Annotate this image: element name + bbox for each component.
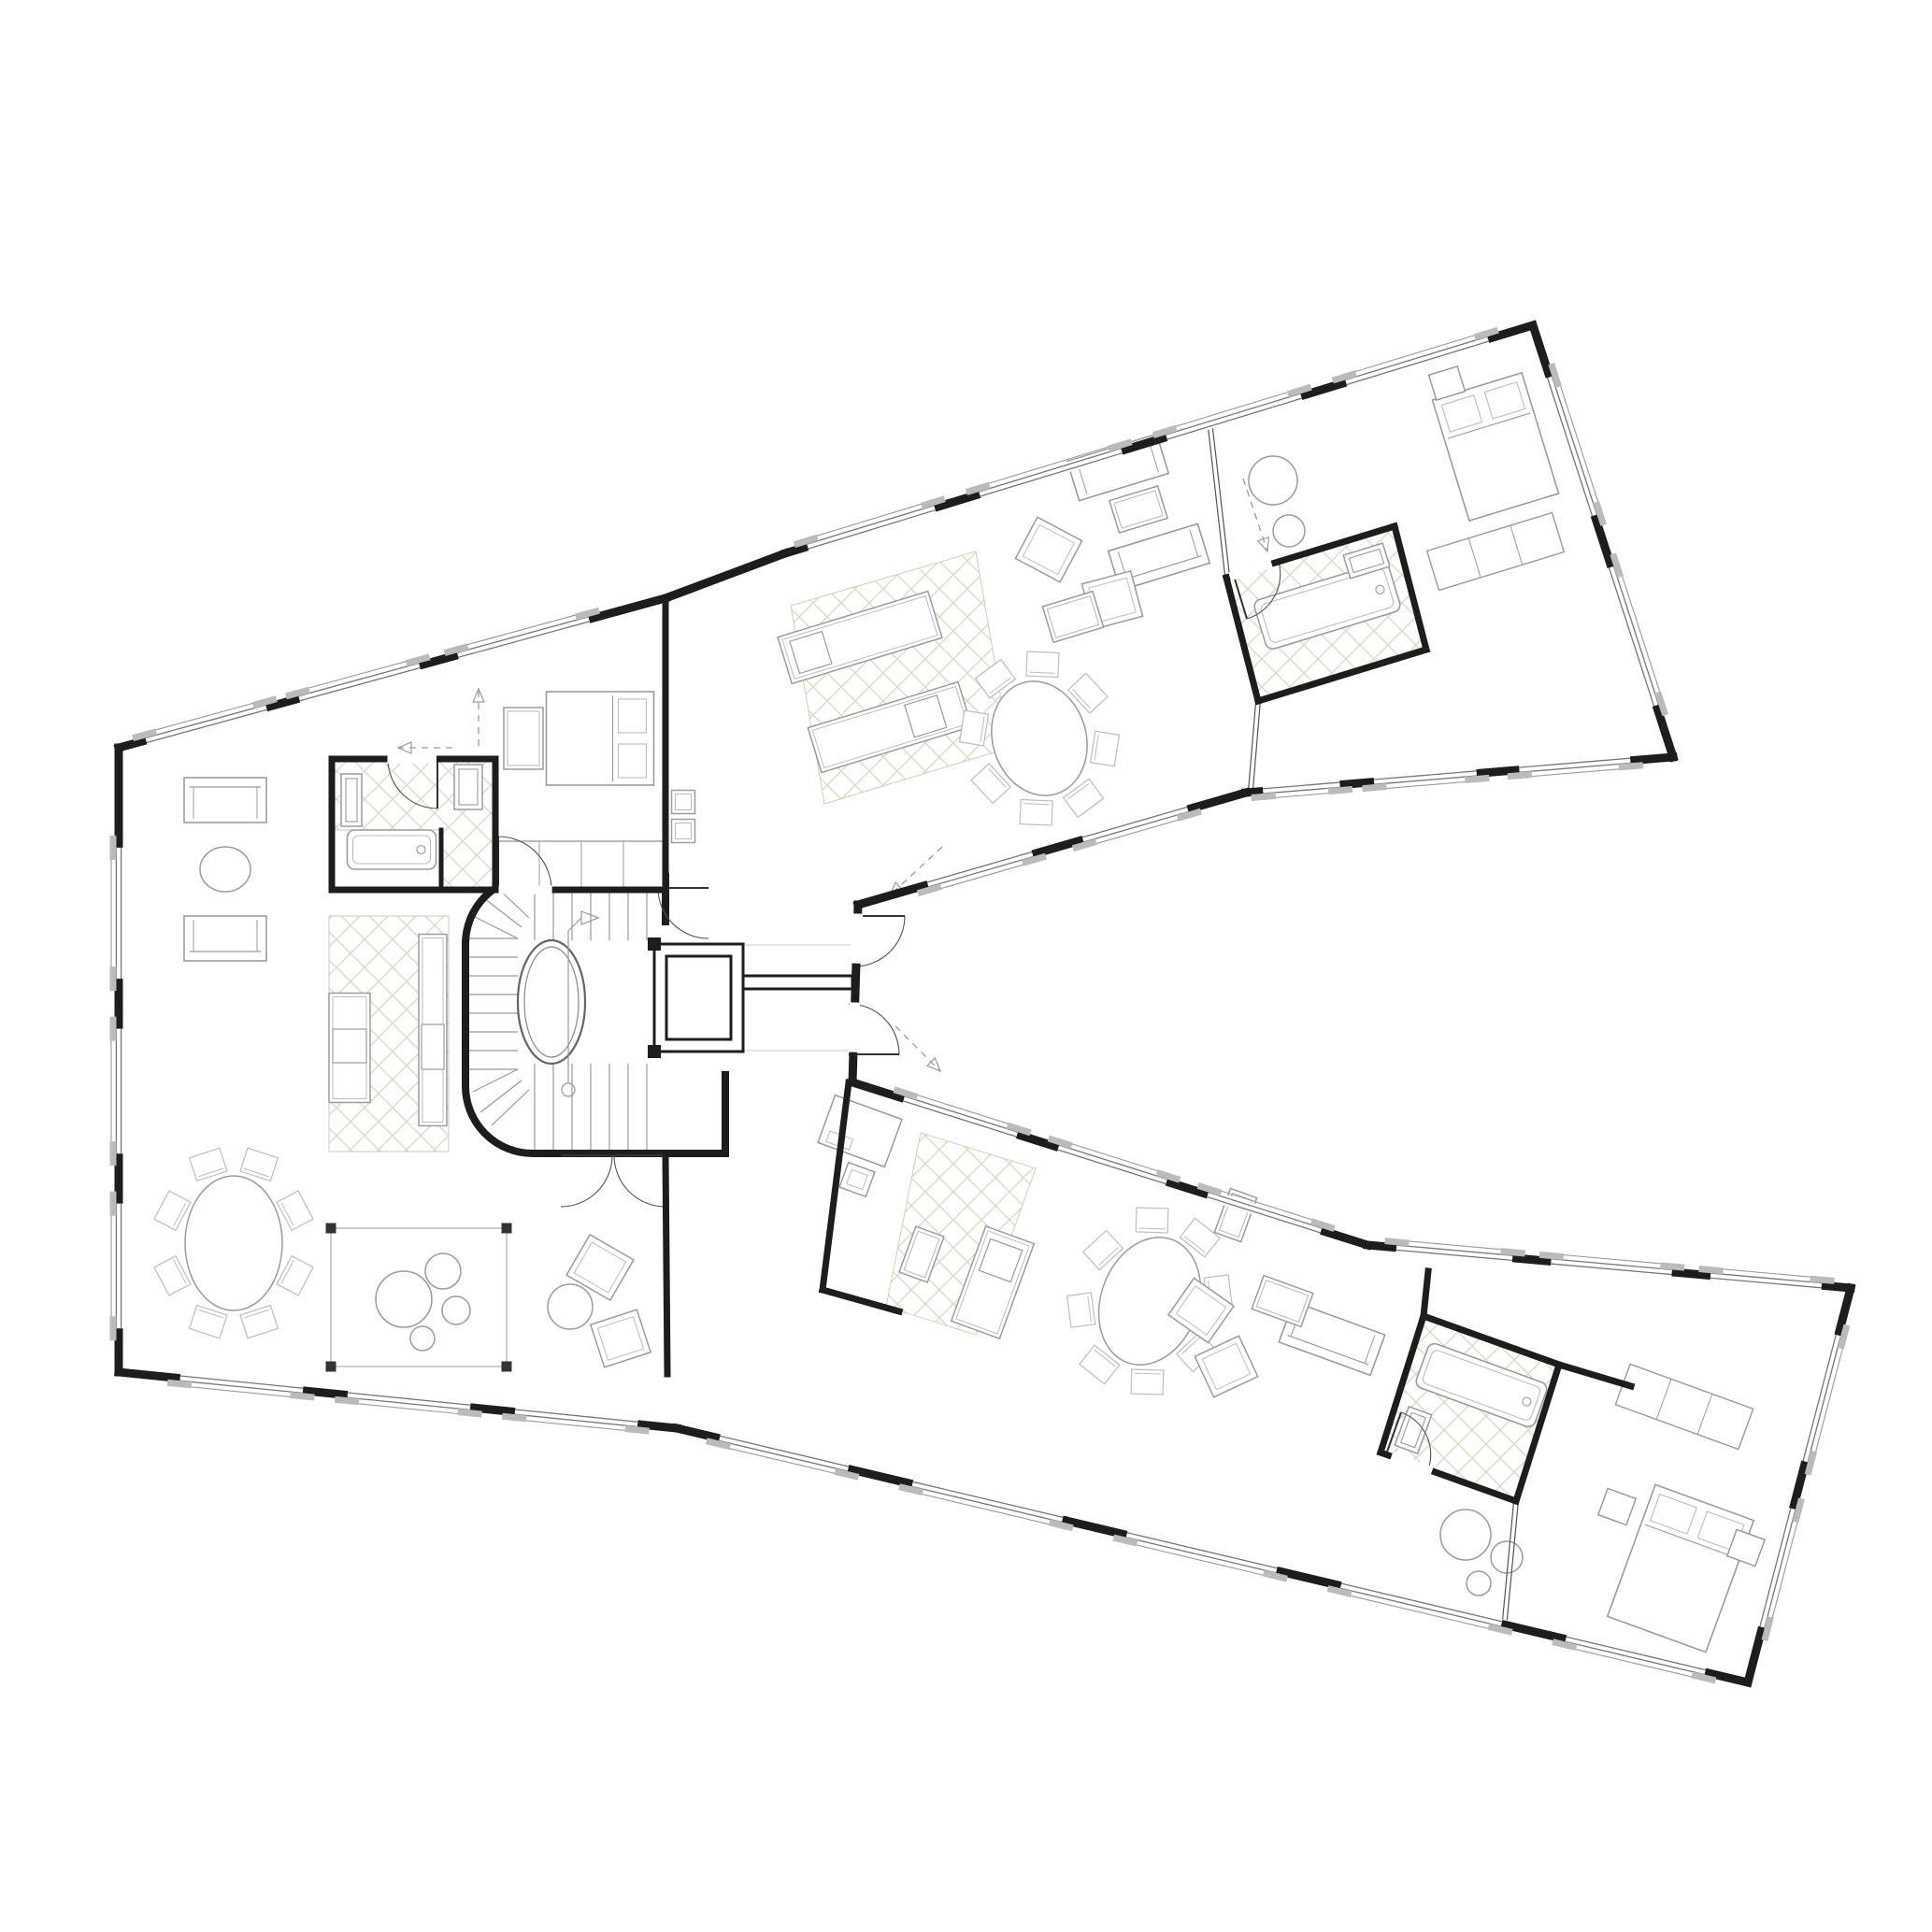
glass-partition-lower (1507, 1501, 1518, 1620)
coffee-table-left (200, 847, 250, 892)
coffee-table-lower (1252, 1276, 1313, 1327)
bed-left-apartment (547, 692, 654, 785)
wintergarden-post-b (502, 1224, 512, 1234)
stool-lower-a (1491, 1541, 1523, 1573)
nightstand-lower-a (1598, 1488, 1636, 1524)
stool-lower-b (1467, 1571, 1491, 1596)
wardrobe-lower-wing (1615, 1364, 1753, 1449)
cabinet-hall-b (672, 820, 695, 843)
wall-upper-wing-south (1246, 757, 1673, 798)
desk-lower-wing (818, 1095, 902, 1167)
dining-table-left (154, 1148, 313, 1338)
wall-left-apartment-south (119, 1372, 677, 1432)
sink-left-b (454, 765, 482, 809)
shaft-tab-1 (648, 1045, 661, 1058)
side-table-upper (1042, 592, 1103, 643)
staircase (465, 877, 725, 1153)
floor-plan-canvas (0, 0, 1932, 1932)
stair-walkline-arrow (581, 911, 598, 924)
kitchen-counter-left (419, 935, 447, 1126)
arrow-upper-bedroom (1243, 479, 1267, 551)
kitchen-island-left (329, 994, 370, 1103)
sink-left-a (341, 774, 362, 826)
elevator-shaft-group (648, 937, 852, 1058)
wintergarden-post-a (326, 1224, 336, 1234)
bathtub-left (348, 830, 436, 869)
sofa-left-north (184, 778, 266, 823)
desk-chair-lower (839, 1163, 875, 1197)
stool-upper-bedroom (1273, 515, 1305, 547)
shaft-tab-0 (648, 937, 661, 951)
wardrobe-upper-wing (1427, 512, 1565, 590)
armchair-left-b (591, 1309, 651, 1367)
round-table-upper-bedroom (1249, 456, 1297, 505)
wall-lower-wing-south (677, 1428, 1748, 1682)
elevator-oval-outer (518, 940, 585, 1064)
armchair-left-a (566, 1235, 634, 1300)
door-south-hall-left-swing (561, 1155, 612, 1207)
stair-enclosure-wall (465, 877, 725, 1153)
wintergarden-outline (331, 1228, 507, 1367)
round-table-lower-bedroom (1440, 1510, 1491, 1560)
wintergarden-post-d (502, 1362, 512, 1372)
wall-lower-wing-north-2 (1367, 1240, 1851, 1288)
floor-plan-page (0, 0, 1932, 1932)
dresser-left-bedroom (504, 708, 543, 769)
wall-north-jog (665, 553, 785, 598)
coffee-table-upper (1109, 486, 1167, 533)
wall-lower-partition (1424, 1271, 1428, 1316)
shaft-inner-wall (666, 956, 731, 1039)
cabinet-hall-a (672, 791, 695, 814)
wall-hall-west (665, 1155, 667, 1374)
wall-left-apartment-west (111, 748, 122, 1372)
wardrobe-left-bedroom (497, 841, 665, 888)
wintergarden-post-c (326, 1362, 336, 1372)
armchair-upper-a (1015, 517, 1081, 581)
arrow-lower-entry (895, 1026, 940, 1071)
door-south-hall-right-swing (614, 1155, 665, 1207)
wall-lower-bedroom (1559, 1365, 1631, 1386)
glass-partition-upper-south (1252, 701, 1260, 791)
wall-lower-wing-east (1748, 1288, 1851, 1682)
sofa-left-south (184, 916, 266, 961)
side-table-left (548, 1284, 593, 1329)
wall-core-west (852, 905, 858, 1082)
glass-partition-upper-bedroom (1212, 428, 1229, 576)
stair-walkline-start (562, 1083, 575, 1096)
